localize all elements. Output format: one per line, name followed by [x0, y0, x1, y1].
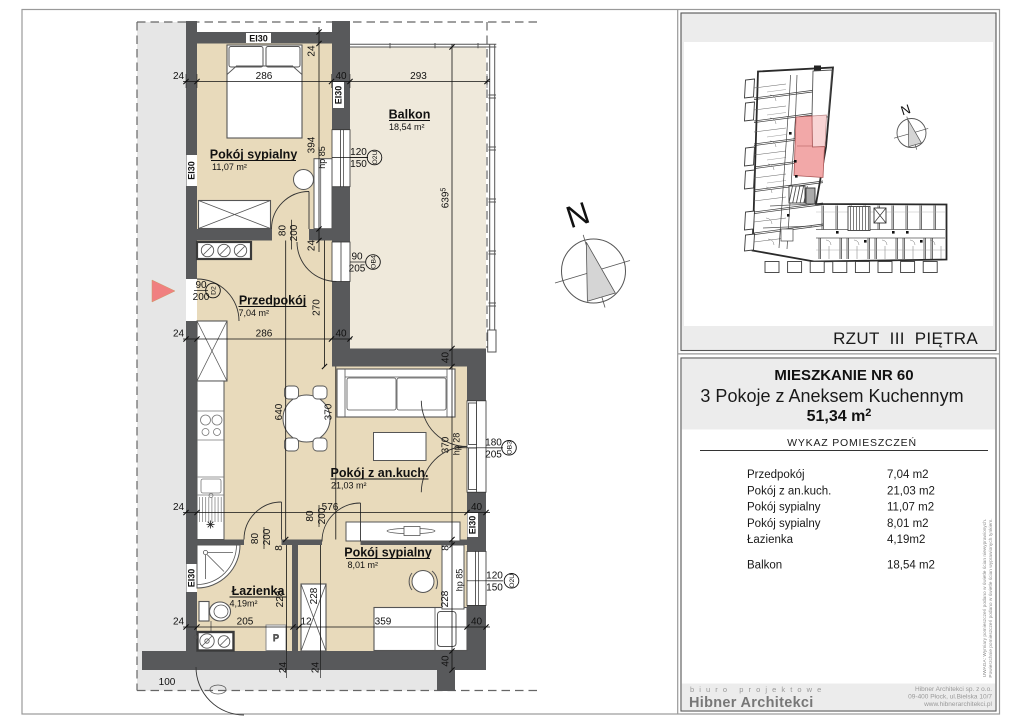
- svg-text:293: 293: [410, 71, 427, 82]
- svg-text:200: 200: [193, 292, 210, 303]
- svg-text:205: 205: [485, 449, 502, 460]
- svg-text:Przedpokój: Przedpokój: [747, 469, 805, 481]
- svg-text:4,19m²: 4,19m²: [230, 599, 258, 609]
- svg-text:640: 640: [274, 403, 285, 420]
- svg-text:EI30: EI30: [187, 569, 197, 588]
- svg-text:80: 80: [250, 533, 261, 545]
- svg-text:www.hibnerarchitekci.pl: www.hibnerarchitekci.pl: [923, 701, 992, 708]
- svg-text:228: 228: [309, 587, 320, 604]
- svg-text:120: 120: [350, 147, 367, 158]
- svg-text:RZUT III PIĘTRA: RZUT III PIĘTRA: [833, 329, 978, 348]
- svg-text:359: 359: [375, 617, 392, 628]
- svg-text:180: 180: [485, 437, 502, 448]
- svg-text:WYKAZ POMIESZCZEŃ: WYKAZ POMIESZCZEŃ: [787, 436, 917, 449]
- svg-text:09-400 Płock, ul.Bielska 10/7: 09-400 Płock, ul.Bielska 10/7: [908, 694, 992, 701]
- svg-text:21,03 m²: 21,03 m²: [331, 481, 367, 491]
- svg-text:b i u r o p r o j e k t o w: b i u r o p r o j e k t o w e: [690, 685, 823, 694]
- svg-text:Łazienka: Łazienka: [232, 584, 286, 598]
- svg-text:11,07 m²: 11,07 m²: [212, 162, 247, 172]
- svg-text:Pokój sypialny: Pokój sypialny: [344, 546, 432, 560]
- svg-text:200: 200: [289, 224, 300, 241]
- svg-text:hp 85: hp 85: [455, 569, 465, 592]
- svg-text:205: 205: [237, 617, 254, 628]
- svg-text:O2U: O2U: [509, 574, 516, 588]
- svg-text:UWAGA: Wymiary pomieszczeń pod: UWAGA: Wymiary pomieszczeń podano w świe…: [982, 519, 988, 677]
- svg-text:24: 24: [307, 45, 318, 57]
- svg-text:51,34 m2: 51,34 m2: [807, 407, 872, 425]
- svg-text:228: 228: [440, 590, 451, 607]
- svg-text:7,04 m²: 7,04 m²: [239, 308, 270, 318]
- svg-text:394: 394: [307, 136, 318, 153]
- svg-text:40: 40: [471, 502, 483, 513]
- svg-text:24: 24: [173, 617, 185, 628]
- svg-text:24: 24: [173, 502, 185, 513]
- svg-text:40: 40: [335, 329, 347, 340]
- svg-text:Pokój sypialny: Pokój sypialny: [210, 148, 298, 162]
- svg-text:8,01 m²: 8,01 m²: [348, 560, 379, 570]
- svg-text:hp 28: hp 28: [452, 433, 462, 456]
- svg-text:21,03 m2: 21,03 m2: [887, 486, 935, 498]
- svg-text:205: 205: [349, 264, 366, 275]
- svg-text:18,54 m2: 18,54 m2: [887, 560, 935, 572]
- svg-text:286: 286: [256, 329, 273, 340]
- svg-text:370: 370: [324, 403, 335, 420]
- svg-text:EI30: EI30: [334, 86, 344, 105]
- svg-text:EI30: EI30: [249, 34, 268, 44]
- svg-text:18,54 m²: 18,54 m²: [389, 122, 425, 132]
- svg-text:P: P: [273, 633, 279, 643]
- svg-text:8,01 m2: 8,01 m2: [887, 518, 929, 530]
- svg-text:Hibner Architekci: Hibner Architekci: [689, 695, 814, 711]
- svg-text:Pokój z an.kuch.: Pokój z an.kuch.: [331, 466, 429, 480]
- svg-text:Balkon: Balkon: [747, 560, 782, 572]
- svg-text:Pokój sypialny: Pokój sypialny: [747, 518, 821, 530]
- svg-text:90: 90: [195, 280, 207, 291]
- svg-text:O2U: O2U: [372, 150, 379, 164]
- svg-text:Pokój sypialny: Pokój sypialny: [747, 502, 821, 514]
- svg-text:24: 24: [173, 71, 185, 82]
- svg-text:24: 24: [311, 662, 322, 674]
- svg-text:hp 85: hp 85: [317, 146, 327, 169]
- svg-text:120: 120: [486, 570, 503, 581]
- svg-text:100: 100: [159, 677, 176, 688]
- svg-text:90: 90: [351, 252, 363, 263]
- svg-text:80: 80: [278, 225, 289, 237]
- svg-text:7,04 m2: 7,04 m2: [887, 469, 929, 481]
- svg-text:24: 24: [307, 240, 318, 252]
- svg-text:OB4: OB4: [370, 255, 377, 269]
- svg-text:EI30: EI30: [187, 161, 197, 180]
- svg-text:12: 12: [300, 617, 312, 628]
- svg-text:Łazienka: Łazienka: [747, 534, 794, 546]
- svg-text:270: 270: [312, 299, 323, 316]
- svg-text:40: 40: [335, 71, 347, 82]
- svg-text:OB3: OB3: [506, 441, 513, 455]
- svg-text:EI30: EI30: [468, 516, 478, 535]
- svg-text:40: 40: [441, 655, 452, 667]
- svg-text:370: 370: [441, 436, 452, 453]
- svg-text:Hibner Architekci sp. z o.o.: Hibner Architekci sp. z o.o.: [915, 686, 992, 693]
- svg-text:Powierzchnie pomieszczeń podan: Powierzchnie pomieszczeń podano w świetl…: [988, 518, 994, 677]
- svg-text:8: 8: [441, 545, 452, 551]
- svg-text:3 Pokoje z Aneksem Kuchennym: 3 Pokoje z Aneksem Kuchennym: [700, 386, 963, 406]
- svg-text:24: 24: [173, 329, 185, 340]
- svg-text:Balkon: Balkon: [389, 108, 431, 122]
- svg-text:40: 40: [471, 617, 483, 628]
- svg-text:80: 80: [305, 510, 316, 522]
- svg-text:24: 24: [278, 662, 289, 674]
- svg-text:286: 286: [256, 71, 273, 82]
- svg-text:150: 150: [350, 159, 367, 170]
- svg-text:Pokój z an.kuch.: Pokój z an.kuch.: [747, 486, 831, 498]
- svg-text:Przedpokój: Przedpokój: [239, 294, 306, 308]
- svg-text:8: 8: [274, 545, 285, 551]
- svg-text:4,19m2: 4,19m2: [887, 534, 925, 546]
- svg-text:11,07 m2: 11,07 m2: [887, 502, 934, 514]
- svg-text:40: 40: [441, 352, 452, 364]
- svg-text:D2: D2: [210, 286, 217, 295]
- svg-text:150: 150: [486, 582, 503, 593]
- svg-text:MIESZKANIE NR 60: MIESZKANIE NR 60: [774, 367, 913, 384]
